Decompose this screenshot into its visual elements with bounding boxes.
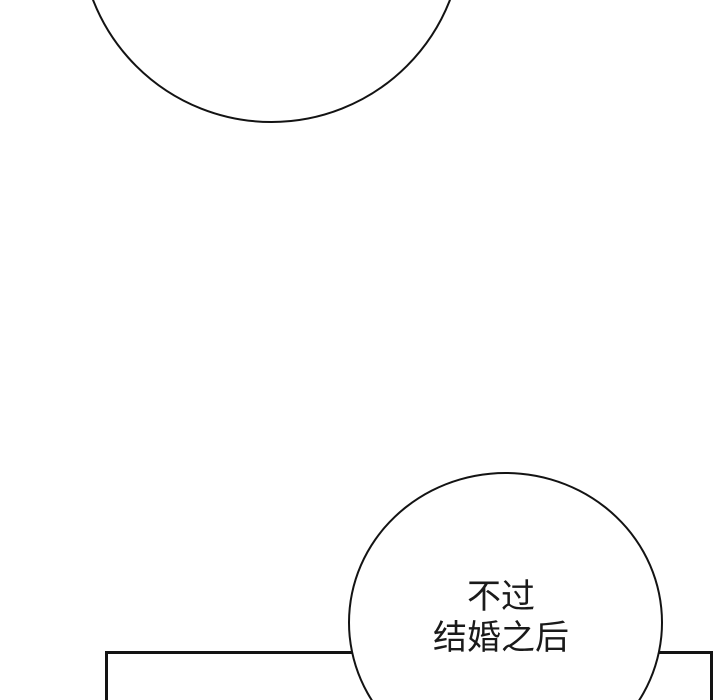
- speech-line-2: 结婚之后: [421, 618, 581, 659]
- speech-bubble-text: 不过 结婚之后: [421, 577, 581, 659]
- comic-page: 不过 结婚之后: [0, 0, 720, 700]
- speech-line-1: 不过: [421, 577, 581, 618]
- speech-bubble-top: [79, 0, 464, 123]
